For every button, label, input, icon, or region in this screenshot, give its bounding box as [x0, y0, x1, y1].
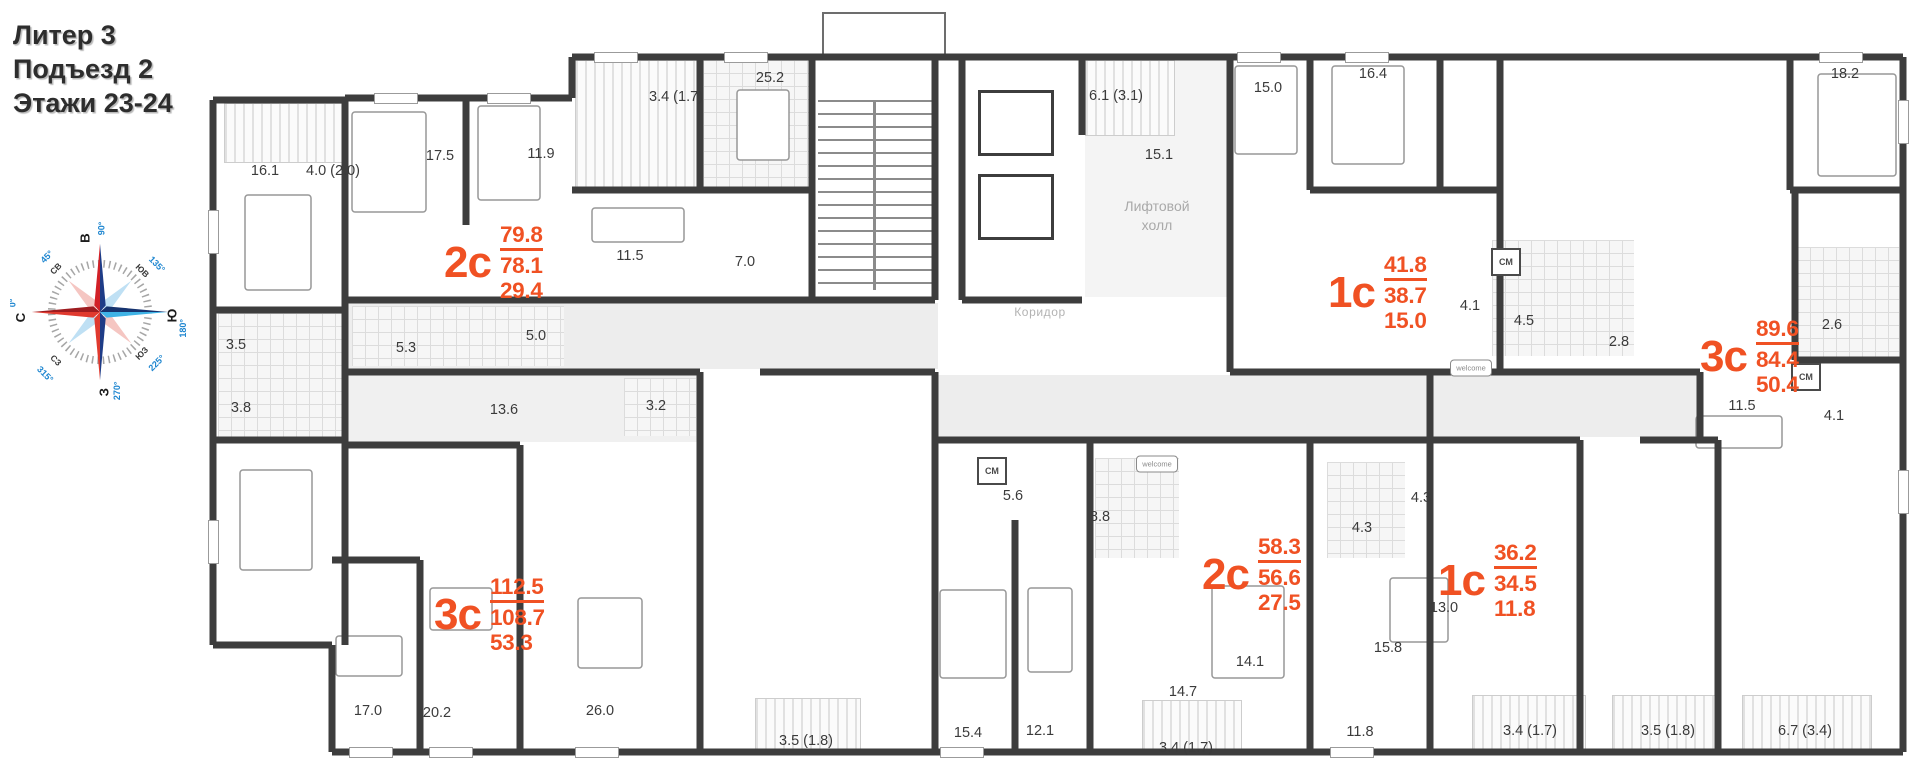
room-area-label: 4.3: [1352, 520, 1372, 536]
balcony: [224, 103, 344, 163]
room-area-label: 4.0 (2.0): [306, 163, 360, 179]
apartment-area-kitchen: 53.3: [490, 630, 533, 655]
plan-title: Литер 3 Подъезд 2 Этажи 23-24: [13, 18, 173, 120]
apartment-area-kitchen: 29.4: [500, 278, 543, 303]
compass-east: В: [78, 233, 93, 243]
compass-north: С: [13, 312, 28, 322]
room-area-label: 11.8: [1346, 724, 1373, 740]
room-area-label: 8.8: [1090, 509, 1110, 525]
compass-northeast: СВ: [48, 261, 64, 277]
room-area-label: 15.8: [1374, 640, 1402, 656]
room-area-label: 18.2: [1831, 66, 1859, 82]
bathroom-tiles: [1797, 247, 1899, 357]
apartment-area-living: 108.7: [490, 605, 545, 630]
room-area-label: 11.5: [616, 248, 643, 264]
window: [374, 93, 418, 104]
apartment-area-total: 112.5: [490, 574, 544, 603]
room-area-label: 2.6: [1822, 317, 1842, 333]
room-area-label: 5.0: [526, 328, 546, 344]
room-area-label: 3.5 (1.8): [1641, 723, 1695, 739]
washing-machine-badge: СМ: [1491, 248, 1521, 276]
room-area-label: 11.9: [527, 146, 554, 162]
elevator-hall-line1: Лифтовой: [1124, 197, 1189, 216]
apartment-label-3c-right: 3с89.684.450.4: [1700, 316, 1799, 398]
elevator-car: [978, 90, 1054, 156]
room-area-label: 3.8: [231, 400, 251, 416]
room-area-label: 4.3: [1411, 490, 1431, 506]
elevator-car: [978, 174, 1054, 240]
apartment-label-1c-bottom: 1с36.234.511.8: [1438, 540, 1537, 622]
apartment-area-living: 38.7: [1384, 283, 1427, 308]
window: [208, 210, 219, 254]
room-area-label: 3.2: [646, 398, 666, 414]
title-liter: Литер 3: [13, 18, 173, 52]
room-area-label: 14.7: [1169, 684, 1197, 700]
apartment-areas: 41.838.715.0: [1384, 252, 1427, 334]
apartment-area-total: 41.8: [1384, 252, 1427, 281]
welcome-doormat: welcome: [1136, 456, 1178, 473]
compass-south-deg: 180°: [178, 319, 188, 338]
room-area-label: 3.5 (1.8): [779, 733, 833, 749]
window: [1330, 747, 1374, 758]
room-area-label: 26.0: [586, 703, 614, 719]
compass-west-deg: 270°: [112, 381, 122, 400]
room-area-label: 4.1: [1460, 298, 1480, 314]
apartment-area-kitchen: 15.0: [1384, 308, 1427, 333]
apartment-type: 1с: [1438, 559, 1485, 603]
room-area-label: 14.1: [1236, 654, 1264, 670]
elevator-hall-line2: холл: [1124, 216, 1189, 235]
apartment-area-living: 56.6: [1258, 565, 1301, 590]
balcony: [575, 60, 699, 190]
room-area-label: 15.1: [1145, 147, 1173, 163]
floorplan-page: Литер 3 Подъезд 2 Этажи 23-24 В 90° С 0°: [0, 0, 1910, 768]
room-area-label: 17.5: [426, 148, 454, 164]
compass-east-deg: 90°: [97, 222, 107, 235]
room-area-label: 16.4: [1359, 66, 1387, 82]
window: [487, 93, 531, 104]
stair-shaft-top: [822, 12, 946, 60]
apartment-areas: 112.5108.753.3: [490, 574, 545, 656]
title-etazhi: Этажи 23-24: [13, 86, 173, 120]
apartment-area-total: 89.6: [1756, 316, 1799, 345]
bathroom-tiles: [218, 313, 342, 438]
compass-labels: В 90° С 0° Ю 180° З 270° СВ 45° ЮВ 135° …: [10, 222, 188, 400]
apartment-label-3c-bottom: 3с112.5108.753.3: [434, 574, 545, 656]
welcome-doormat: welcome: [1450, 360, 1492, 377]
washing-machine-badge: СМ: [977, 457, 1007, 485]
apartment-area-total: 79.8: [500, 222, 543, 251]
room-area-label: 11.5: [1728, 398, 1755, 414]
apartment-areas: 79.878.129.4: [500, 222, 543, 304]
apartment-type: 1с: [1328, 271, 1375, 315]
compass-southeast: ЮВ: [134, 262, 152, 280]
apartment-area-total: 36.2: [1494, 540, 1537, 569]
window: [1237, 52, 1281, 63]
room-area-label: 5.3: [396, 340, 416, 356]
room-area-label: 3.5: [226, 337, 246, 353]
elevator-hall-label: Лифтовой холл: [1124, 197, 1189, 235]
compass-rose: В 90° С 0° Ю 180° З 270° СВ 45° ЮВ 135° …: [10, 222, 190, 402]
apartment-areas: 58.356.627.5: [1258, 534, 1301, 616]
apartment-area-living: 78.1: [500, 253, 543, 278]
room-area-label: 4.5: [1514, 313, 1534, 329]
room-area-label: 15.4: [954, 725, 982, 741]
room-area-label: 15.0: [1254, 80, 1282, 96]
room-area-label: 6.1 (3.1): [1089, 88, 1143, 104]
room-area-label: 25.2: [756, 70, 784, 86]
apartment-area-kitchen: 11.8: [1494, 596, 1535, 621]
room-area-label: 2.8: [1609, 334, 1629, 350]
apartment-type: 3с: [434, 593, 481, 637]
compass-north-deg: 0°: [10, 298, 18, 307]
compass-northwest: СЗ: [48, 353, 63, 368]
staircase-rail: [873, 100, 876, 290]
window: [1898, 470, 1909, 514]
room-area-label: 12.1: [1026, 723, 1054, 739]
apartment-label-2c-bottom: 2с58.356.627.5: [1202, 534, 1301, 616]
room-area-label: 16.1: [251, 163, 279, 179]
room-area-label: 3.4 (1.7): [1503, 723, 1557, 739]
room-area-label: 7.0: [735, 254, 755, 270]
room-area-label: 4.1: [1824, 408, 1844, 424]
room-area-label: 3.4 (1.7): [1159, 740, 1213, 756]
window: [1898, 100, 1909, 144]
window: [940, 747, 984, 758]
window: [594, 52, 638, 63]
apartment-area-living: 34.5: [1494, 571, 1537, 596]
window: [429, 747, 473, 758]
apartment-type: 2с: [444, 241, 491, 285]
room-area-label: 13.6: [490, 402, 518, 418]
compass-southwest: ЮЗ: [133, 345, 150, 362]
window: [724, 52, 768, 63]
apartment-label-1c-top: 1с41.838.715.0: [1328, 252, 1427, 334]
apartment-area-kitchen: 27.5: [1258, 590, 1301, 615]
room-area-label: 3.4 (1.7): [649, 89, 703, 105]
window: [208, 520, 219, 564]
room-area-label: 6.7 (3.4): [1778, 723, 1832, 739]
window: [1345, 52, 1389, 63]
apartment-area-total: 58.3: [1258, 534, 1301, 563]
apartment-type: 3с: [1700, 335, 1747, 379]
corridor-tint-right: [938, 375, 1700, 437]
compass-northwest-deg: 315°: [35, 364, 56, 385]
window: [349, 747, 393, 758]
room-area-label: 17.0: [354, 703, 382, 719]
window: [1819, 52, 1863, 63]
apartment-area-living: 84.4: [1756, 347, 1799, 372]
apartment-area-kitchen: 50.4: [1756, 372, 1799, 397]
title-podezd: Подъезд 2: [13, 52, 173, 86]
compass-west: З: [97, 388, 112, 396]
room-area-label: 20.2: [423, 705, 451, 721]
apartment-label-2c-top: 2с79.878.129.4: [444, 222, 543, 304]
apartment-type: 2с: [1202, 553, 1249, 597]
apartment-areas: 36.234.511.8: [1494, 540, 1537, 622]
corridor-label: Коридор: [1014, 305, 1066, 319]
compass-northeast-deg: 45°: [38, 248, 55, 265]
bathroom-tiles: [1095, 458, 1179, 558]
room-area-label: 5.6: [1003, 488, 1023, 504]
apartment-areas: 89.684.450.4: [1756, 316, 1799, 398]
compass-southwest-deg: 225°: [146, 353, 167, 374]
bathroom-tiles: [1327, 462, 1405, 558]
window: [575, 747, 619, 758]
